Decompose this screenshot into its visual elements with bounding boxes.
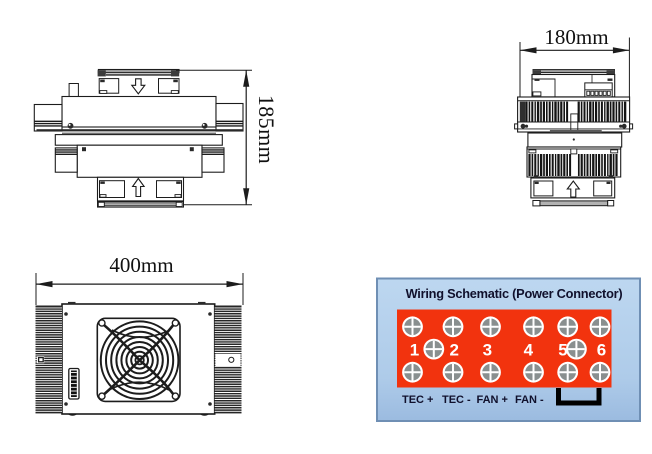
svg-text:3: 3 [483,341,492,360]
svg-text:TEC -: TEC - [442,394,471,406]
svg-text:FAN +: FAN + [477,394,508,406]
svg-text:400mm: 400mm [109,253,173,277]
svg-text:TEC +: TEC + [402,394,433,406]
svg-text:6: 6 [597,341,606,360]
svg-text:1: 1 [410,341,419,360]
svg-text:FAN -: FAN - [515,394,544,406]
svg-text:180mm: 180mm [544,25,608,49]
svg-text:2: 2 [449,341,458,360]
svg-text:Wiring Schematic (Power Connec: Wiring Schematic (Power Connector) [406,286,623,301]
svg-text:185mm: 185mm [254,95,279,164]
svg-text:5: 5 [558,341,567,360]
svg-text:4: 4 [524,341,534,360]
